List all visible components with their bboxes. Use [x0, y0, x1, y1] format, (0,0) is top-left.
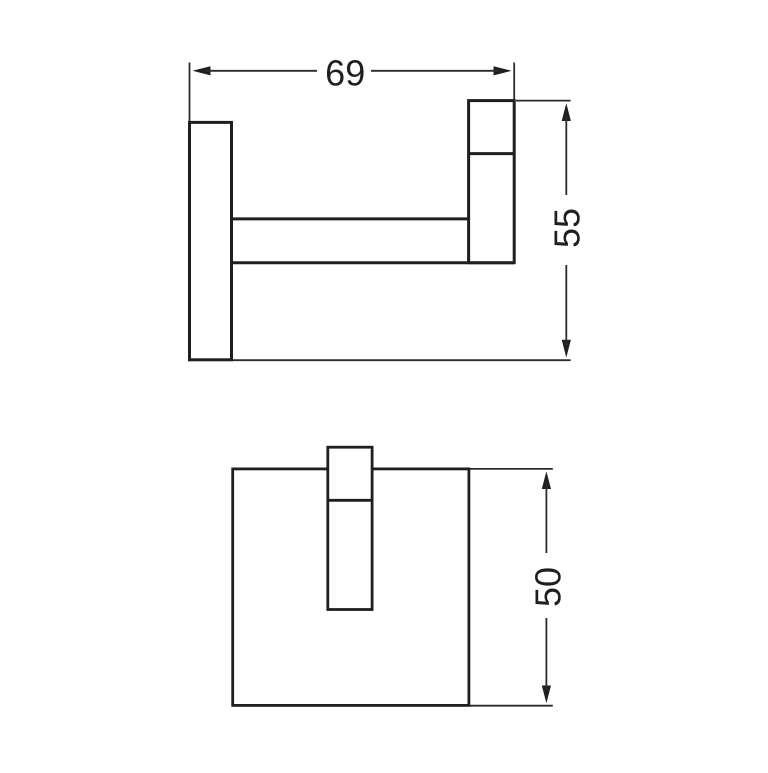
svg-text:69: 69: [325, 52, 365, 93]
svg-text:55: 55: [547, 208, 588, 248]
svg-text:50: 50: [528, 567, 569, 607]
